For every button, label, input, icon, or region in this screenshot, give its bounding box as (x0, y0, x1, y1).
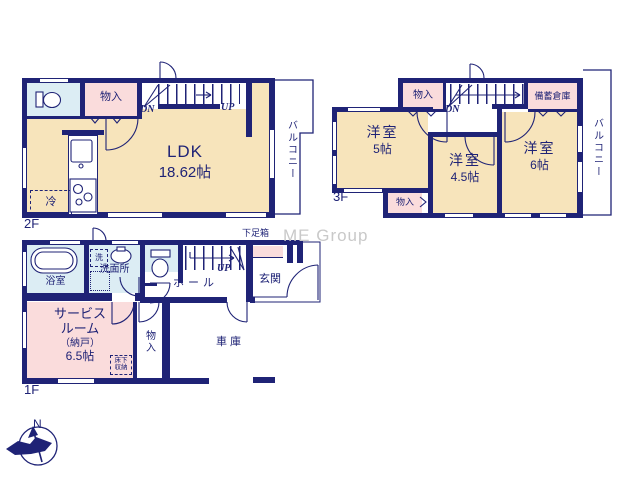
floor-label-3f: 3F (333, 190, 348, 205)
western5-size: 5帖 (337, 143, 428, 157)
balcony-label-2f: バルコニー (285, 120, 297, 180)
window (22, 148, 27, 188)
underfloor-label: 床下 収納 (110, 357, 132, 372)
entrance-label: 玄関 (253, 273, 287, 286)
window (332, 156, 337, 184)
window (577, 162, 583, 192)
washroom-label: 洗面所 (89, 264, 140, 276)
window (344, 188, 382, 193)
stairs-up-label-2f: UP (221, 102, 234, 114)
floor-label-2f: 2F (24, 217, 39, 232)
garage-door-arc (227, 302, 247, 322)
window (577, 126, 583, 152)
hall-label: ホール (145, 277, 246, 290)
window (50, 240, 80, 245)
wall (140, 297, 227, 303)
closet-label-3f-bottom: 物入 (388, 197, 422, 207)
closet-label-1f: 物入 (143, 330, 155, 354)
stair-treads-3f (450, 84, 524, 104)
western45-name: 洋室 (433, 152, 497, 168)
stair-door-arc-2f (160, 62, 176, 78)
room-label-ldk: LDK 18.62帖 (115, 142, 255, 181)
stair-treads-1f (185, 246, 243, 270)
wall (22, 378, 209, 384)
room-label-western5: 洋室 5帖 (337, 124, 428, 157)
watermark: ME Group (283, 226, 368, 246)
balcony-label-3f: バルコニー (591, 118, 603, 178)
kitchen-counter (68, 135, 98, 215)
wall (428, 132, 502, 137)
underfloor-line2: 収納 (110, 364, 132, 371)
wall (133, 302, 137, 378)
stair-treads-2f (158, 84, 240, 104)
bath-label: 浴室 (27, 276, 84, 288)
wall (27, 116, 142, 119)
service-room-label: サービス ルーム （納戸） 6.5帖 (27, 307, 133, 364)
shoe-box-label: 下足箱 (242, 228, 269, 238)
laundry-label: 洗 (90, 253, 108, 262)
service-line1: サービス (27, 307, 133, 322)
closet-label-2f: 物入 (85, 91, 137, 104)
window (540, 213, 566, 218)
ldk-size: 18.62帖 (115, 164, 255, 181)
window (108, 212, 162, 218)
entrance-pillar (297, 245, 303, 263)
western45-size: 4.5帖 (433, 171, 497, 185)
wall (22, 293, 112, 301)
western5-name: 洋室 (337, 124, 428, 140)
compass-north-label: N (33, 418, 42, 432)
floor-label-1f: 1F (24, 383, 39, 398)
wall (246, 245, 253, 302)
stairs-down-label-3f: DN (445, 104, 459, 116)
window (40, 78, 68, 83)
window (505, 213, 531, 218)
ldk-name: LDK (115, 142, 255, 162)
stairs-up-label-1f: UP (217, 263, 230, 275)
window (58, 378, 94, 384)
storage-label: 備蓄倉庫 (528, 91, 577, 101)
wall (398, 78, 583, 83)
wall (162, 297, 170, 384)
room-label-western45: 洋室 4.5帖 (433, 152, 497, 185)
garage-label: 車庫 (216, 336, 244, 349)
shoe-box (253, 246, 283, 258)
fridge-label: 冷 (30, 196, 72, 209)
wall (158, 104, 220, 109)
western6-name: 洋室 (502, 140, 577, 156)
window (226, 212, 266, 218)
service-line3: （納戸） (27, 338, 133, 350)
closet-label-3f-top: 物入 (403, 90, 443, 102)
stair-door-arc-3f (470, 64, 484, 78)
wall (246, 83, 252, 137)
window (445, 213, 473, 218)
compass-icon (6, 426, 57, 465)
wall (250, 297, 255, 303)
floor-plan: 冷 2F LDK 18.62帖 物入 DN UP バルコニー 3F 物入 備蓄倉… (0, 0, 640, 480)
room-toilet-2f (27, 83, 80, 116)
wall (528, 109, 577, 112)
western6-size: 6帖 (502, 159, 577, 173)
service-line2: ルーム (27, 322, 133, 337)
room-label-western6: 洋室 6帖 (502, 140, 577, 173)
entrance-pillar (287, 245, 293, 263)
window (112, 240, 138, 245)
stairs-down-label-2f: DN (140, 104, 154, 116)
entrance-door-arc (287, 265, 318, 300)
garage-wall-stub (253, 377, 275, 383)
window (348, 107, 380, 112)
balcony-door-2f (269, 130, 275, 178)
